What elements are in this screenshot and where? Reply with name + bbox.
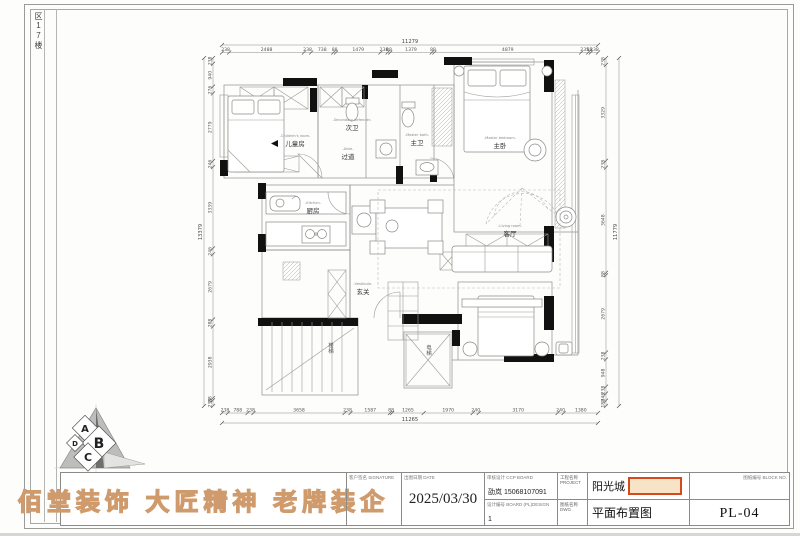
sheet-no-label-row: 图纸编号 BLOCK NO. — [690, 473, 789, 499]
contact-phone: 劭岚 15068107091 — [488, 487, 547, 497]
dimension-text: 3339 — [208, 202, 214, 214]
project-name: 阳光城 — [592, 478, 625, 494]
dimension-text: 238 — [221, 47, 230, 53]
sofa — [452, 246, 552, 272]
issue-date: 2025/03/30 — [402, 491, 484, 508]
shoe-cabinet — [388, 282, 418, 340]
dimension-text: 2679 — [208, 281, 214, 293]
dimension-text: 1970 — [442, 408, 454, 414]
room-label-en: -Children's room- — [280, 134, 312, 138]
room-label-aisle: 过道 — [342, 152, 356, 161]
contact-label: 审核设计 CCP BOARD — [487, 475, 533, 480]
project-row: 阳光城 — [588, 473, 689, 499]
dimension-text: 4879 — [502, 47, 514, 53]
room-label-living: 客厅 — [504, 229, 518, 238]
design-no-value: 1 — [488, 516, 492, 523]
room-label-stairs: 楼梯 — [327, 341, 334, 355]
dimension-text: 238 — [303, 47, 312, 53]
dimension-text: 2779 — [208, 121, 214, 133]
dimension-text: 2938 — [208, 356, 214, 368]
room-label-kitchen: 厨房 — [307, 206, 320, 215]
redaction-highlight — [628, 477, 682, 495]
dimension-text: 3658 — [293, 408, 305, 414]
dimension-text: 1479 — [352, 47, 364, 53]
dimension-text: 288 — [208, 319, 214, 328]
contact-cell: 审核设计 CCP BOARD 劭岚 15068107091 设计编号 BOARD… — [484, 473, 557, 525]
drawing-row: 平面布置图 — [588, 499, 689, 526]
speaker — [556, 207, 576, 227]
dimension-text: 788 — [233, 408, 242, 414]
signature-label: 客户签名 SIGNATURE — [349, 475, 394, 480]
room-label-en: -Vestibule- — [354, 282, 374, 286]
tv-bench — [462, 299, 542, 307]
room-label-vestibule: 玄关 — [357, 287, 371, 296]
company-slogan: 佰堂装饰 大匠精神 老牌装企 — [18, 482, 389, 517]
dimension-text: 88 — [388, 408, 394, 414]
sheet-number: PL-04 — [690, 506, 789, 522]
sheet-no-label: 图纸编号 BLOCK NO. — [743, 475, 787, 480]
dimension-text: 3648 — [601, 214, 607, 226]
room-label-en: -Master bedroom- — [484, 136, 517, 140]
design-no-label: 设计编号 BOARD (PL)DESIGN — [487, 502, 549, 507]
room-label-en: -Master bath- — [405, 133, 430, 137]
dimension-text: 276 — [208, 86, 214, 95]
children-bed — [228, 96, 284, 172]
dimension-text: 238 — [590, 47, 599, 53]
dimension-text: 948 — [601, 369, 607, 378]
logo-letter-c: C — [84, 451, 92, 464]
date-cell: 出图日期 DATE 2025/03/30 — [401, 473, 484, 525]
washbasin-master — [416, 160, 438, 175]
dimension-text: 238 — [601, 351, 607, 360]
room-label-en: -Secondary defender- — [333, 118, 372, 122]
room-label-master-bedroom: 主卧 — [494, 141, 508, 150]
field-values-cell: 阳光城 平面布置图 — [587, 473, 689, 525]
dimension-text: 11265 — [402, 417, 419, 423]
signature-cell: 客户签名 SIGNATURE — [346, 473, 401, 525]
contact-row: 审核设计 CCP BOARD 劭岚 15068107091 — [485, 473, 557, 499]
company-logo: A B C D — [52, 402, 147, 482]
room-label-en: -Aisle- — [342, 147, 354, 151]
dimension-text: 3170 — [512, 408, 524, 414]
room-label-en: -Kitchen- — [305, 201, 322, 205]
sheet-number-cell: 图纸编号 BLOCK NO. PL-04 — [689, 473, 789, 525]
dimension-text: 940 — [208, 71, 214, 80]
project-label: 工程名称 PROJECT — [558, 473, 587, 499]
design-no-row: 设计编号 BOARD (PL)DESIGN 1 — [485, 499, 557, 526]
drawing-label: 图纸名称 DWG — [558, 499, 587, 526]
dimension-text: 1380 — [575, 408, 587, 414]
drawing-sheet: 区17楼 — [0, 0, 800, 536]
dimension-text: 3329 — [601, 107, 607, 119]
slogan-cell: 佰堂装饰 大匠精神 老牌装企 — [61, 473, 346, 525]
stairs — [266, 322, 354, 392]
dimension-text: 238 — [601, 160, 607, 169]
dimension-text: 11779 — [613, 224, 619, 241]
drawing-name: 平面布置图 — [592, 504, 652, 521]
dimension-text: 238 — [601, 57, 607, 66]
logo-letter-d: D — [72, 440, 78, 448]
elevator-shaft — [406, 334, 450, 386]
ceiling-fan-arc — [486, 188, 558, 226]
logo-letter-b: B — [94, 436, 105, 452]
dining-table — [352, 200, 443, 254]
dimension-text: 1265 — [402, 408, 414, 414]
sheet-no-value-row: PL-04 — [690, 499, 789, 526]
toilet-master — [402, 102, 415, 127]
washbasin-secondary — [376, 140, 396, 158]
field-labels-cell: 工程名称 PROJECT 图纸名称 DWG — [557, 473, 587, 525]
title-block: 佰堂装饰 大匠精神 老牌装企 客户签名 SIGNATURE 出图日期 DATE … — [60, 472, 790, 526]
room-label-master-bath: 主卫 — [411, 138, 425, 147]
room-label-en: -Living room- — [498, 224, 522, 228]
room-label-secondary-bath: 次卫 — [346, 123, 360, 132]
dimension-text: 13379 — [198, 224, 204, 241]
dimension-text: 2679 — [601, 308, 607, 320]
room-label-children: 儿童房 — [285, 139, 305, 148]
round-chair — [524, 139, 546, 161]
dimension-text: 11279 — [402, 39, 419, 45]
dimension-text: 1587 — [364, 408, 376, 414]
room-label-elevator: 电梯 — [425, 343, 432, 357]
dimension-text: 2488 — [261, 47, 273, 53]
dimension-text: 1379 — [405, 47, 417, 53]
dimension-text: 738 — [318, 47, 327, 53]
logo-letter-a: A — [81, 424, 89, 435]
date-label: 出图日期 DATE — [404, 475, 435, 480]
